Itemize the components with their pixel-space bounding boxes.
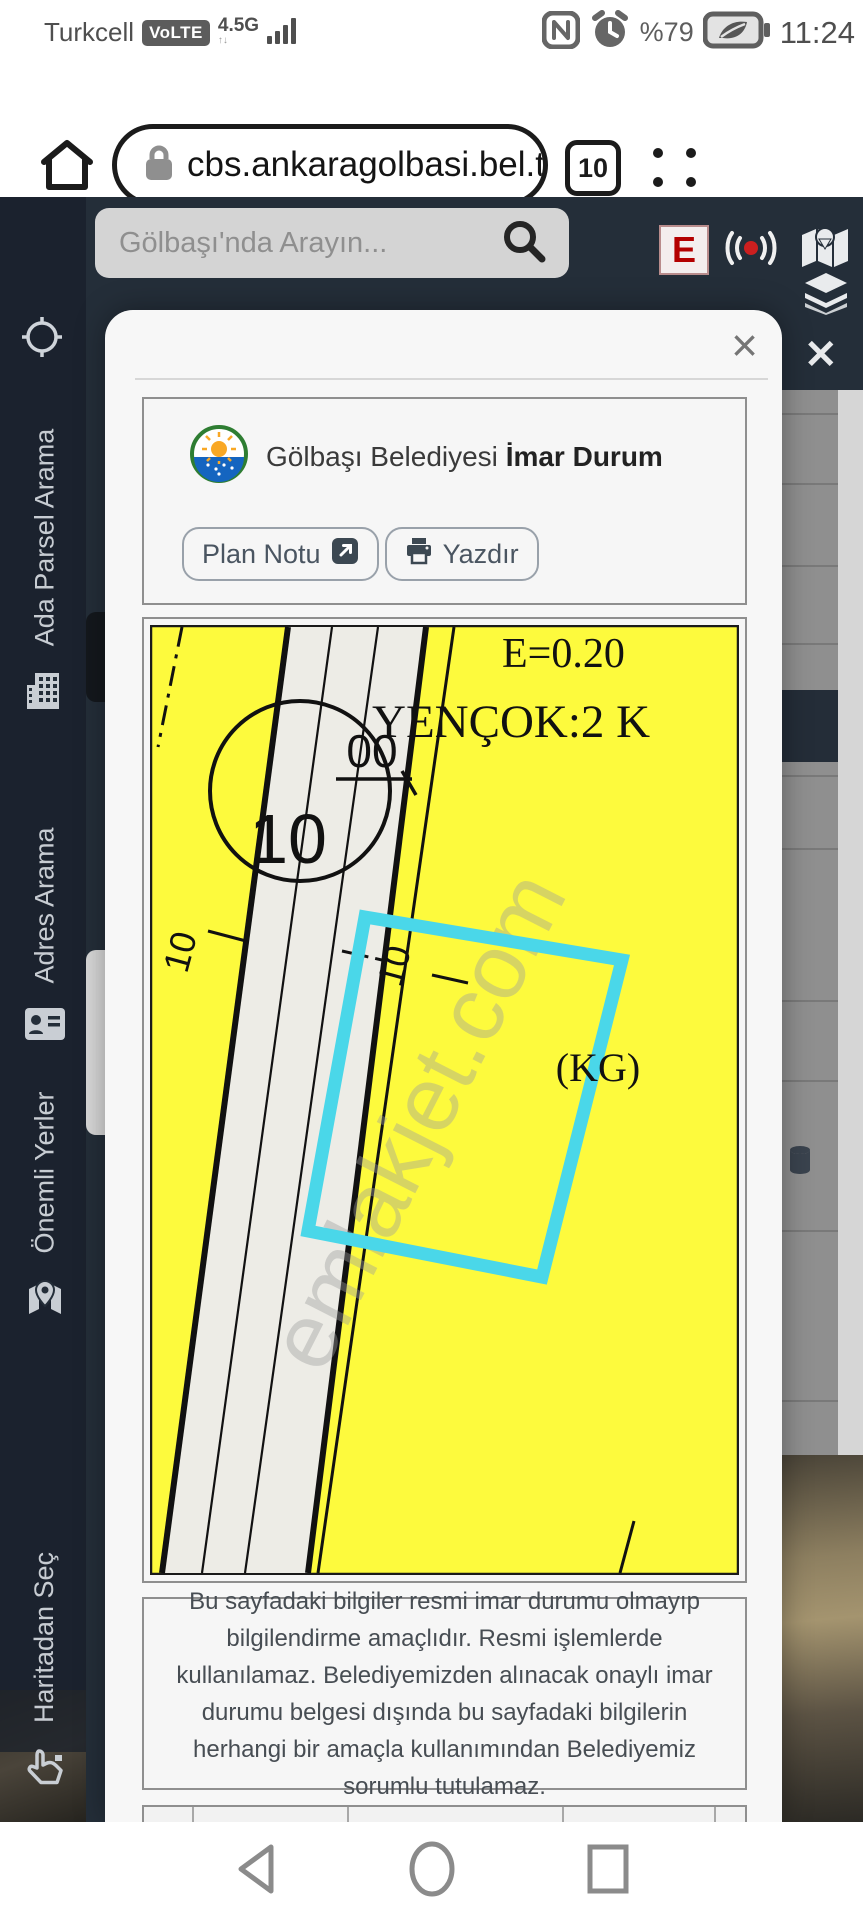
kg-label: (KG) — [556, 1045, 640, 1090]
zoning-map: emlakjet.com 00 10 E=0.20 YENÇOK:2 K 10 … — [150, 625, 739, 1575]
modal-divider — [135, 378, 768, 380]
broadcast-icon[interactable] — [722, 225, 780, 276]
yazdir-label: Yazdır — [443, 539, 519, 570]
plan-notu-label: Plan Notu — [202, 539, 321, 570]
yazdir-button[interactable]: Yazdır — [385, 527, 539, 581]
lock-icon — [143, 144, 175, 187]
search-icon[interactable] — [501, 218, 547, 269]
address-card-icon — [24, 1007, 66, 1046]
panel-close-icon[interactable]: ✕ — [804, 332, 838, 378]
hand-pointer-icon — [25, 1747, 65, 1792]
results-panel-highlight — [838, 390, 863, 1455]
signal-bars-icon — [267, 14, 303, 51]
search-placeholder: Gölbaşı'nda Arayın... — [119, 227, 387, 260]
sidebar-item-label: Haritadan Seç — [30, 1551, 61, 1722]
pharmacy-badge-label: E — [672, 229, 696, 271]
circle-bottom-label: 10 — [249, 800, 327, 878]
crosshair-icon[interactable] — [20, 315, 64, 364]
printer-icon — [405, 537, 433, 572]
modal-header-card: Gölbaşı Belediyesi İmar Durum Plan Notu … — [142, 397, 747, 605]
browser-toolbar: cbs.ankaragolbasi.bel.tr/( 10 — [0, 60, 863, 197]
nav-recents-icon[interactable] — [585, 1843, 631, 1900]
nav-home-icon[interactable] — [407, 1841, 457, 1902]
time-label: 11:24 — [780, 15, 855, 51]
results-panel-dark-row — [781, 690, 838, 762]
pharmacy-badge[interactable]: E — [659, 225, 709, 275]
nav-back-icon[interactable] — [233, 1843, 279, 1900]
search-input[interactable]: Gölbaşı'nda Arayın... — [95, 208, 569, 278]
url-text: cbs.ankaragolbasi.bel.tr/( — [187, 145, 548, 185]
carrier-label: Turkcell — [44, 17, 134, 48]
map-icon[interactable] — [800, 225, 850, 276]
nfc-icon — [542, 11, 580, 54]
zoning-map-card[interactable]: emlakjet.com 00 10 E=0.20 YENÇOK:2 K 10 … — [142, 617, 747, 1583]
screenshot-root: { "status_bar": { "carrier": "Turkcell",… — [0, 0, 863, 1920]
plan-notu-button[interactable]: Plan Notu — [182, 527, 379, 581]
municipality-logo — [190, 425, 248, 488]
sidebar-item-label: Ada Parsel Arama — [30, 428, 61, 646]
database-icon — [788, 1145, 812, 1180]
battery-saver-leaf-icon — [703, 11, 771, 54]
imar-durum-modal: × Gölbaşı Belediyesi İmar Durum Plan Not… — [105, 310, 782, 1822]
volte-badge: VoLTE — [142, 20, 210, 46]
sidebar-item-label: Önemli Yerler — [30, 1091, 61, 1253]
android-nav-bar — [0, 1822, 863, 1920]
building-icon — [25, 671, 65, 714]
yencok-label: YENÇOK:2 K — [372, 696, 650, 748]
modal-close-icon[interactable]: × — [731, 322, 758, 368]
e-value-label: E=0.20 — [502, 631, 625, 677]
sidebar-item-ada-parsel-arama[interactable]: Ada Parsel Arama — [10, 417, 80, 714]
satellite-photo-right — [782, 1455, 863, 1822]
disclaimer-text: Bu sayfadaki bilgiler resmi imar durumu … — [175, 1583, 715, 1805]
alarm-icon — [589, 10, 631, 55]
tab-count-label: 10 — [578, 153, 608, 184]
network-type-label: 4.5G↑↓ — [218, 18, 259, 48]
sidebar-item-onemli-yerler[interactable]: Önemli Yerler — [10, 1077, 80, 1324]
disclaimer-card: Bu sayfadaki bilgiler resmi imar durumu … — [142, 1597, 747, 1790]
battery-percent-label: %79 — [640, 17, 694, 48]
sidebar-item-label: Adres Arama — [30, 827, 61, 983]
menu-dots-icon[interactable] — [648, 148, 700, 192]
results-panel-edge — [781, 390, 838, 1455]
map-marker-icon — [25, 1279, 65, 1324]
tab-count-button[interactable]: 10 — [565, 140, 621, 196]
sidebar-item-adres-arama[interactable]: Adres Arama — [10, 815, 80, 1046]
home-icon[interactable] — [38, 136, 96, 199]
modal-title: Gölbaşı Belediyesi İmar Durum — [266, 441, 663, 473]
status-bar: Turkcell VoLTE 4.5G↑↓ %79 11:24 — [0, 0, 863, 60]
layers-icon[interactable] — [803, 271, 849, 320]
external-link-icon — [331, 537, 359, 572]
sidebar-item-haritadan-sec[interactable]: Haritadan Seç — [10, 1537, 80, 1792]
url-bar[interactable]: cbs.ankaragolbasi.bel.tr/( — [112, 124, 548, 206]
